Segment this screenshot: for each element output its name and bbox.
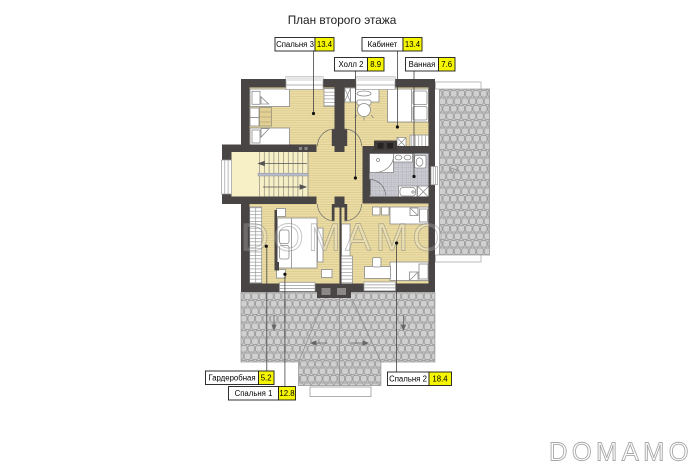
svg-text:18.4: 18.4 <box>432 375 448 384</box>
svg-text:Спальня 2: Спальня 2 <box>389 375 427 384</box>
svg-text:5.2: 5.2 <box>261 374 272 383</box>
svg-text:Ванная: Ванная <box>409 60 436 69</box>
svg-text:7.6: 7.6 <box>441 60 452 69</box>
svg-text:Гардеробная: Гардеробная <box>208 374 255 383</box>
svg-text:8.9: 8.9 <box>370 60 381 69</box>
svg-text:12.8: 12.8 <box>279 389 294 398</box>
svg-text:13.4: 13.4 <box>405 40 421 49</box>
svg-text:DOMAMO: DOMAMO <box>549 439 693 467</box>
svg-text:Спальня 3: Спальня 3 <box>276 40 314 49</box>
svg-text:План второго этажа: План второго этажа <box>288 13 397 27</box>
svg-text:13.4: 13.4 <box>317 40 333 49</box>
svg-text:Холл 2: Холл 2 <box>339 60 364 69</box>
svg-text:Кабинет: Кабинет <box>368 40 398 49</box>
svg-text:DOMAMO: DOMAMO <box>241 217 448 260</box>
svg-text:Спальня 1: Спальня 1 <box>235 389 273 398</box>
